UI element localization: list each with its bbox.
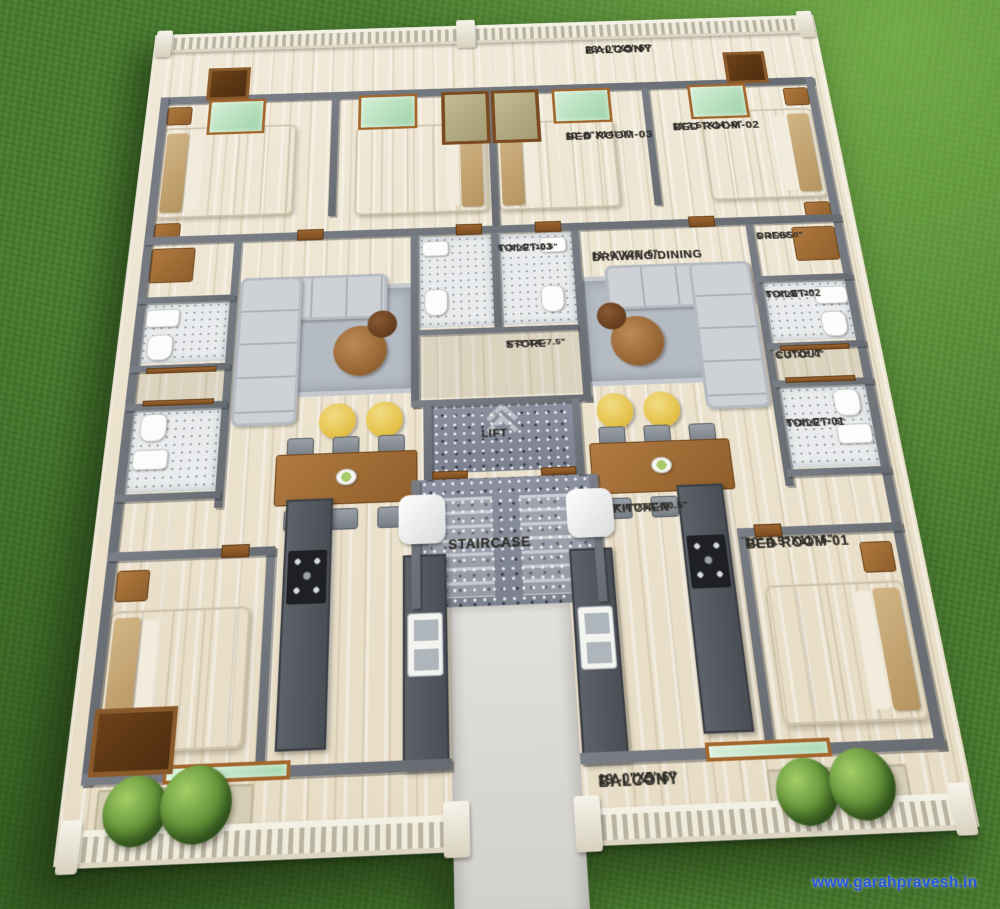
accent-chair [318, 403, 356, 440]
room-dims: 5'-3"X5'-0" [756, 230, 804, 241]
door [456, 224, 483, 236]
glass-panel [358, 94, 417, 130]
balustrade-post [796, 11, 817, 38]
room-dims: 5'-3"X4'-7.5" [506, 337, 566, 350]
room-dims: 19'-0"X5'-6" [598, 768, 678, 790]
balustrade-post [443, 801, 470, 859]
toilet-wc [424, 289, 448, 316]
glass-panel [551, 88, 612, 124]
nightstand [782, 87, 810, 105]
accent-chair [595, 393, 635, 429]
dining-chair [330, 508, 358, 530]
toilet-wc [540, 285, 565, 312]
door [534, 221, 561, 233]
wash-basin [145, 309, 180, 328]
nightstand [114, 570, 150, 603]
nightstand [859, 541, 897, 573]
fridge [399, 494, 446, 545]
wardrobe-box [722, 51, 769, 84]
wash-basin [422, 241, 449, 257]
door [688, 216, 716, 228]
fridge [565, 488, 615, 539]
wall [328, 98, 339, 217]
nightstand [166, 107, 193, 126]
open-shaft-box [88, 706, 179, 778]
glass-panel [687, 83, 750, 119]
lift-door [432, 470, 468, 480]
door [221, 544, 250, 558]
wardrobe [491, 89, 542, 143]
room-dims: 5'-3"X7'-7.5" [785, 416, 846, 430]
room-name: STAIRCASE [448, 533, 531, 554]
kitchen-counter [676, 483, 754, 734]
balustrade-bottom [584, 793, 971, 847]
balustrade-post [154, 30, 173, 57]
room-dims: 5'-3"X8'-2" [765, 288, 814, 300]
balustrade-post [573, 795, 603, 852]
kitchen-sink [577, 605, 617, 670]
wall [423, 404, 432, 480]
wardrobe-box [206, 67, 251, 100]
room-dims: 5'-3"X2'-0" [775, 349, 826, 362]
room-dims: 10'-8"X14'-0" [565, 129, 632, 142]
sofa [230, 276, 302, 427]
dress-cabinet [148, 248, 196, 284]
room-dims: 11'2.5"X14'-0" [672, 119, 744, 132]
stove [286, 550, 327, 605]
lift-door [541, 466, 577, 476]
wall [641, 88, 662, 205]
door [297, 229, 324, 241]
room-dims: 23'-0"X5'-6" [584, 42, 651, 56]
building-plan: BALCONY 23'-0"X5'-6" BED ROOM-03 10'-8"X… [53, 15, 980, 867]
balustrade-top [160, 15, 810, 53]
stove [686, 534, 731, 588]
kitchen-sink [407, 612, 443, 677]
balustrade-post [456, 20, 476, 48]
watermark-url: www.garahpravesh.in [812, 874, 997, 892]
room-name: LIFT [481, 427, 508, 442]
glass-panel [206, 99, 266, 135]
wardrobe [441, 91, 491, 145]
wall [255, 546, 276, 766]
entry-walkway [449, 603, 590, 909]
accent-chair [642, 391, 682, 427]
room-dims: 5'-3"X7'-10.5" [498, 242, 558, 254]
floor-plan-scene: BALCONY 23'-0"X5'-6" BED ROOM-03 10'-8"X… [0, 0, 1000, 909]
wall [411, 236, 420, 408]
wall [107, 546, 276, 561]
glass-panel [705, 737, 833, 761]
accent-chair [366, 401, 403, 438]
wash-basin [131, 449, 169, 471]
room-dims: 11'-0"X23'-6" [591, 249, 659, 263]
kitchen-counter [275, 498, 334, 752]
